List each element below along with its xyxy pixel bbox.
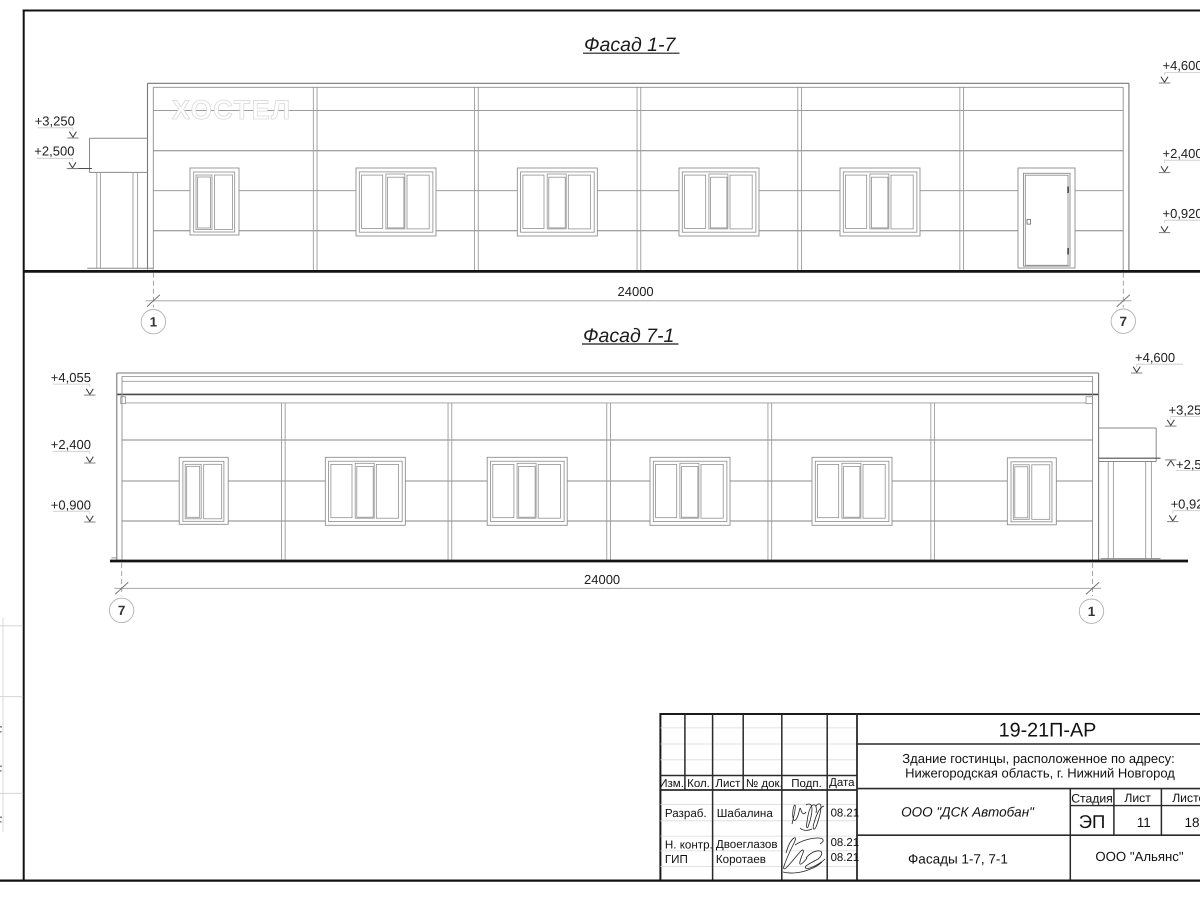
svg-text:+0,900: +0,900 [51, 497, 91, 512]
svg-text:ГИП: ГИП [665, 853, 688, 866]
svg-text:+4,600: +4,600 [1135, 350, 1175, 365]
svg-text:Подп.: Подп. [791, 778, 822, 790]
svg-text:+0,920: +0,920 [1171, 497, 1200, 512]
svg-text:1: 1 [150, 315, 158, 330]
svg-text:Изм.: Изм. [659, 778, 684, 790]
svg-text:Нижегородская область, г. Нижн: Нижегородская область, г. Нижний Новгоро… [905, 765, 1175, 780]
svg-text:+3,250: +3,250 [1169, 403, 1200, 418]
svg-text:7: 7 [118, 603, 126, 618]
svg-text:Лист: Лист [715, 778, 741, 790]
svg-text:19-21П-АР: 19-21П-АР [999, 720, 1097, 742]
svg-text:ЭП: ЭП [1079, 811, 1106, 832]
svg-text:11: 11 [1137, 815, 1151, 830]
svg-text:08.21: 08.21 [831, 837, 860, 849]
svg-text:+2,500: +2,500 [34, 144, 74, 159]
svg-text:+0,920: +0,920 [1163, 206, 1200, 221]
svg-text:ХОСТЕЛ: ХОСТЕЛ [172, 95, 292, 125]
svg-text:24000: 24000 [584, 572, 620, 587]
svg-text:08.21: 08.21 [831, 807, 860, 819]
svg-text:Коротаев: Коротаев [716, 853, 766, 866]
svg-text:Кол.: Кол. [687, 778, 710, 790]
svg-text:+2,500: +2,500 [1176, 457, 1200, 472]
svg-text:ООО "ДСК Автобан": ООО "ДСК Автобан" [901, 805, 1035, 820]
svg-text:18: 18 [1184, 815, 1199, 830]
svg-text:Листов: Листов [1172, 791, 1200, 805]
svg-text:+2,400: +2,400 [1163, 146, 1200, 161]
svg-text:+4,055: +4,055 [51, 370, 91, 385]
svg-text:08.21: 08.21 [831, 852, 860, 864]
svg-text:Шабалина: Шабалина [717, 807, 774, 820]
svg-text:Фасады 1-7, 7-1: Фасады 1-7, 7-1 [908, 851, 1008, 866]
svg-text:+2,400: +2,400 [51, 437, 91, 452]
svg-text:7: 7 [1120, 314, 1128, 329]
svg-text:Н. контр.: Н. контр. [665, 839, 713, 852]
svg-text:Лист: Лист [1124, 791, 1151, 805]
svg-text:Стадия: Стадия [1071, 792, 1113, 806]
svg-text:Здание гостинцы, расположенное: Здание гостинцы, расположенное по адресу… [902, 751, 1174, 766]
svg-text:Двоеглазов: Двоеглазов [716, 838, 778, 851]
svg-text:+4,600: +4,600 [1163, 58, 1200, 73]
svg-text:ООО "Альянс": ООО "Альянс" [1095, 849, 1183, 864]
svg-text:№ док.: № док. [746, 778, 783, 790]
svg-text:+3,250: +3,250 [35, 114, 75, 129]
svg-text:24000: 24000 [618, 284, 654, 299]
svg-text:Разраб.: Разраб. [665, 807, 707, 820]
svg-text:1: 1 [1088, 604, 1096, 619]
svg-text:Дата: Дата [829, 777, 855, 789]
